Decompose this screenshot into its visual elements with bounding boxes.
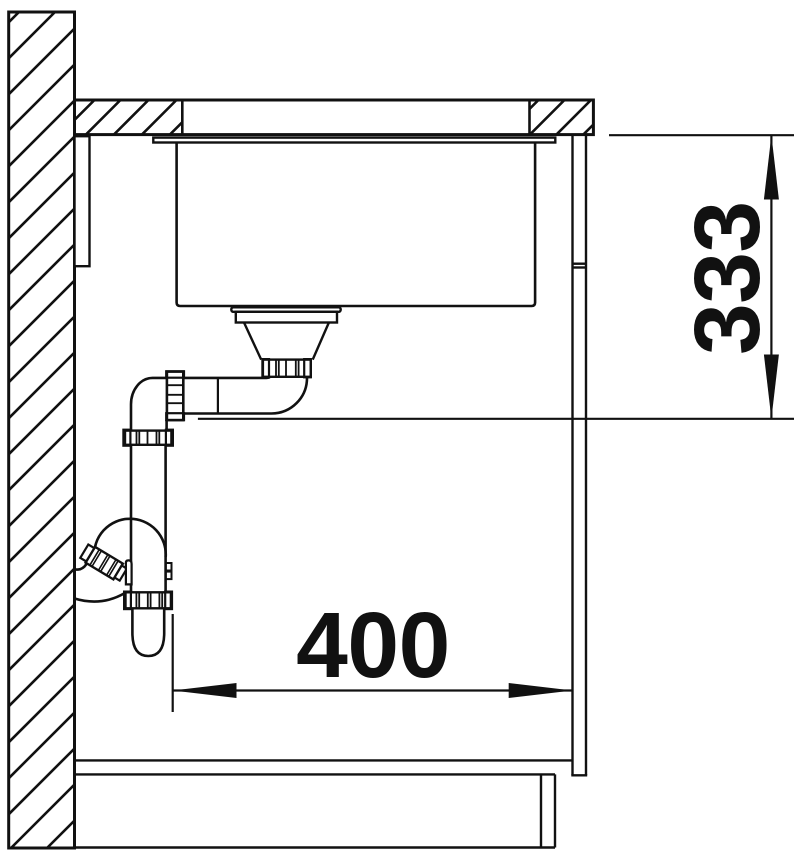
svg-text:333: 333 — [675, 201, 779, 355]
svg-text:400: 400 — [296, 593, 450, 697]
